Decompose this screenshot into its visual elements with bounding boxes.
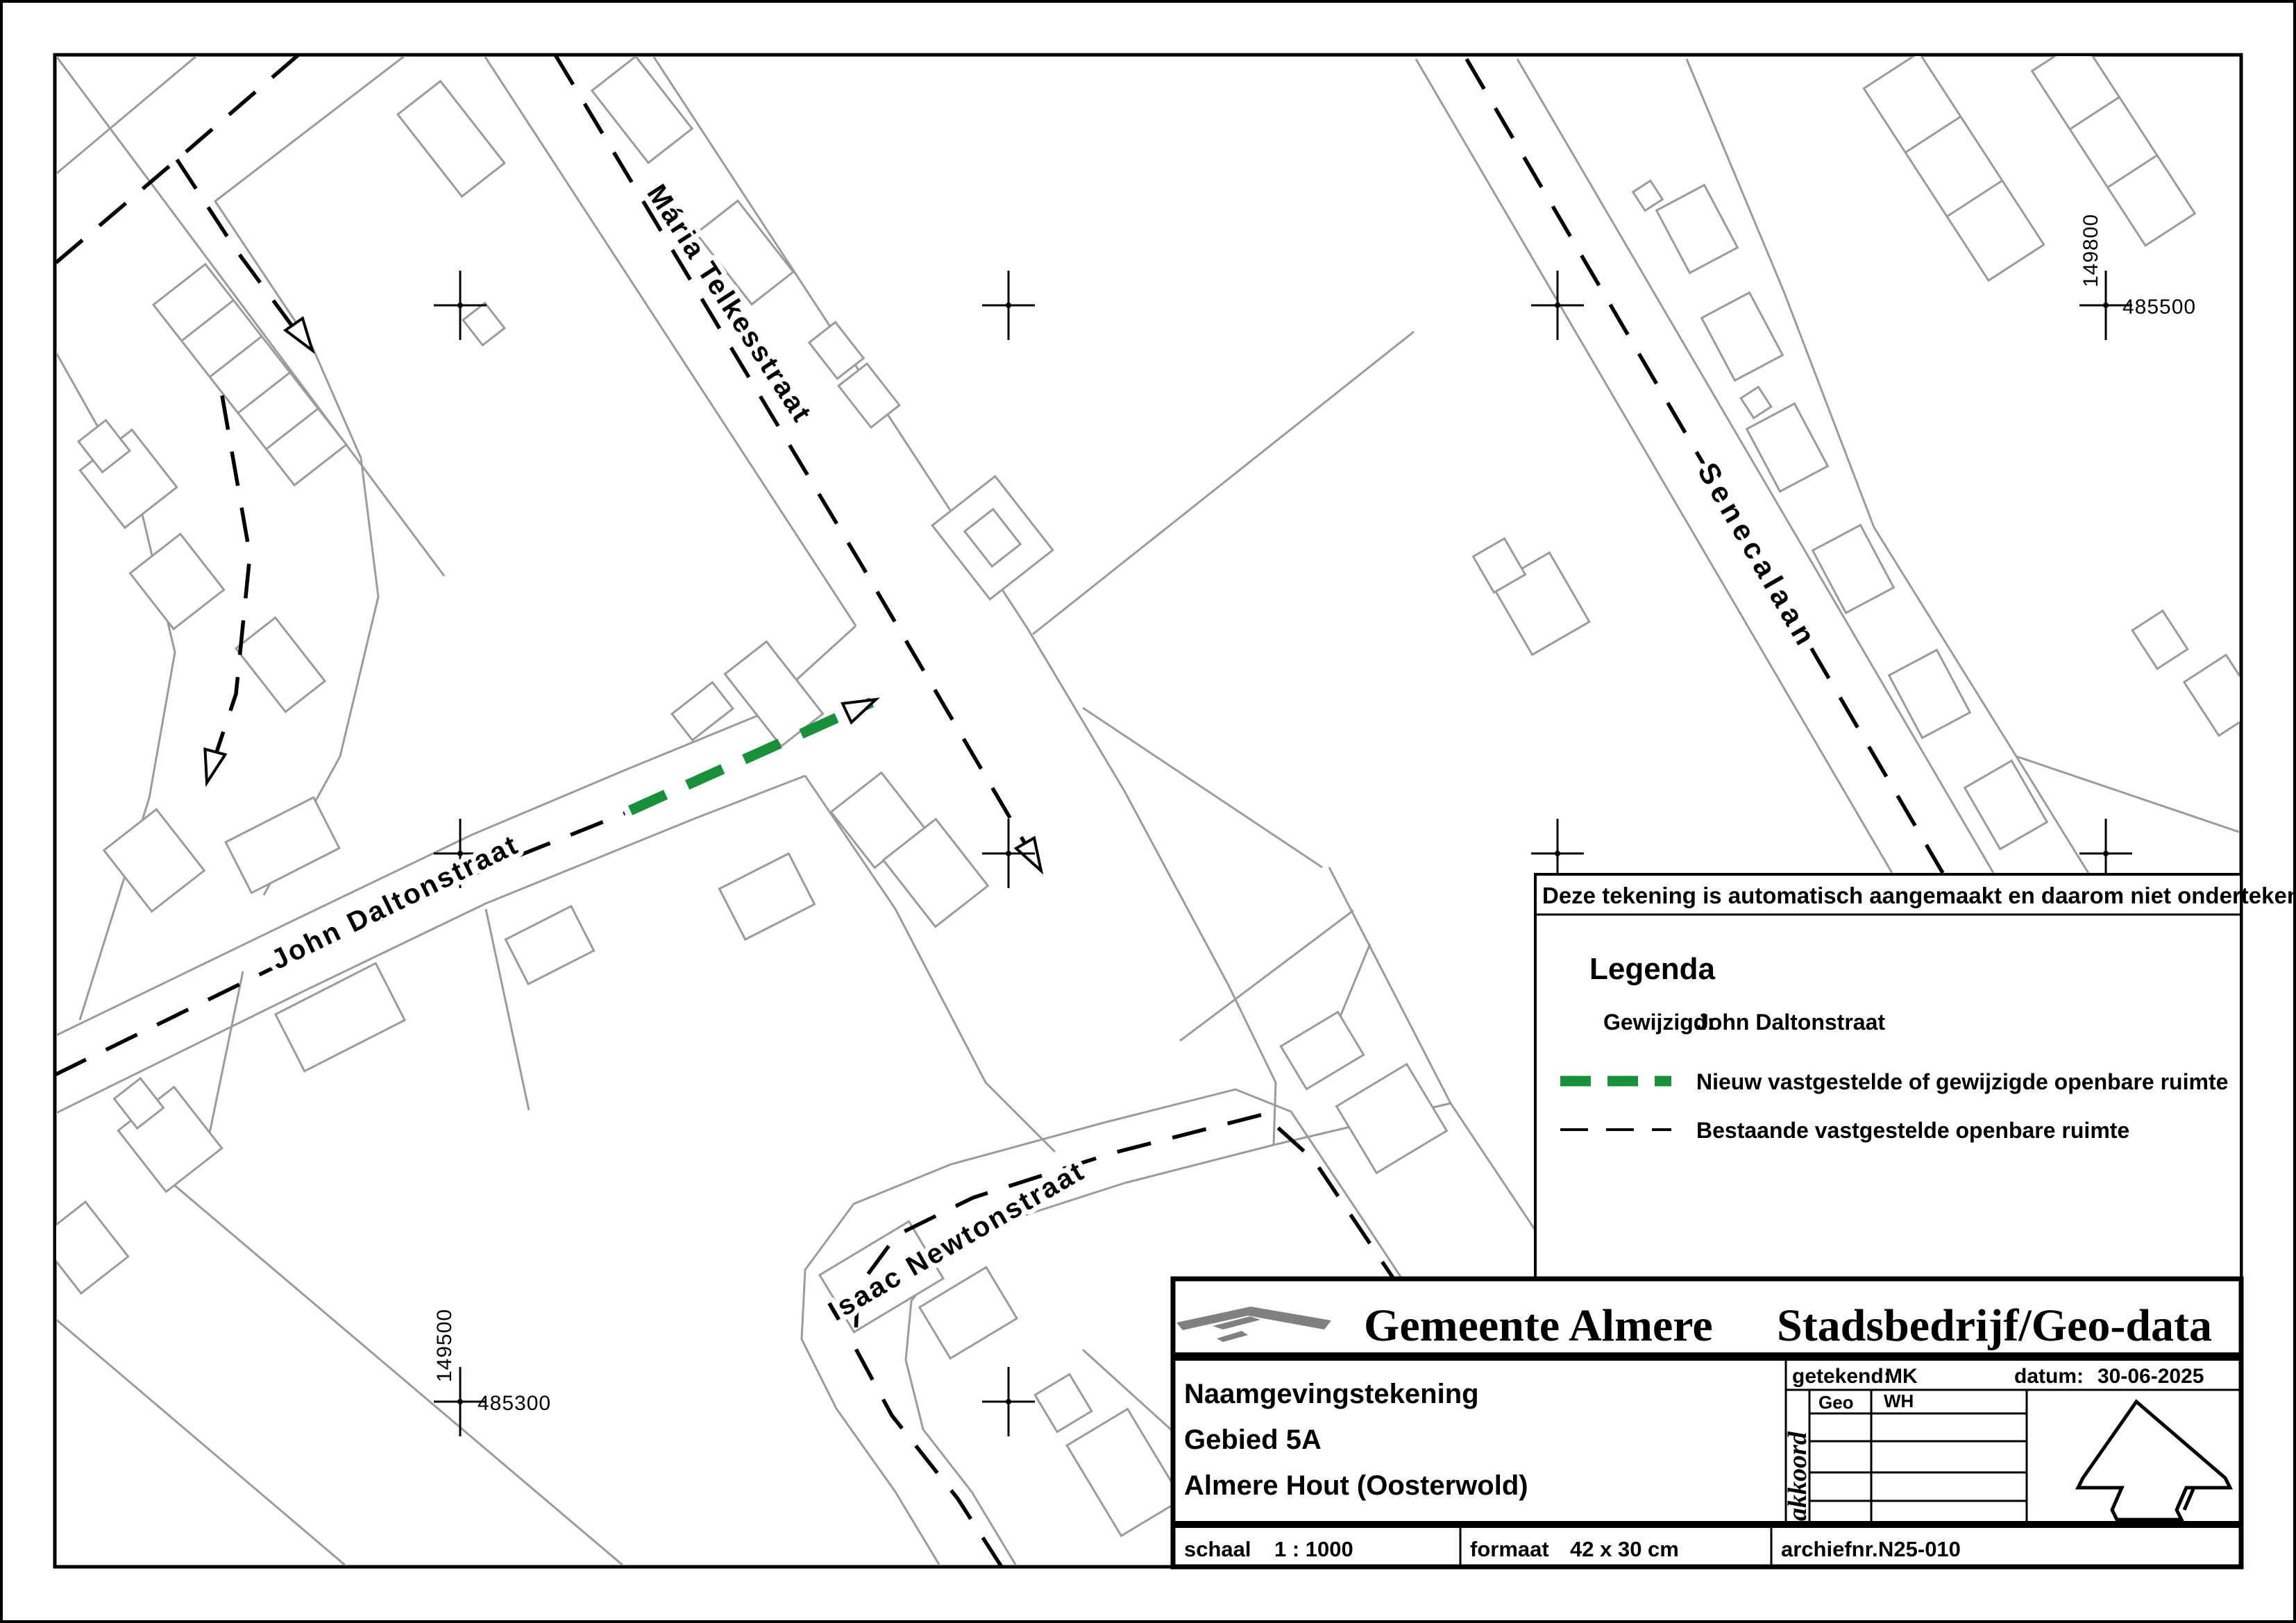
doc-district: Almere Hout (Oosterwold) xyxy=(1184,1470,1528,1501)
drawn-label: getekend: xyxy=(1792,1365,1891,1388)
format-label: formaat xyxy=(1470,1537,1549,1561)
legend-title: Legenda xyxy=(1589,952,1715,986)
grid-label-485300: 485300 xyxy=(478,1392,551,1415)
drawn-value: MK xyxy=(1885,1365,1918,1388)
bottom-row-divider xyxy=(1173,1521,2241,1528)
doc-type: Naamgevingstekening xyxy=(1184,1379,1479,1409)
title-block: Gemeente Almere Stadsbedrijf/Geo-data ge… xyxy=(1173,1279,2241,1567)
doc-area: Gebied 5A xyxy=(1184,1425,1322,1455)
scale-label: schaal xyxy=(1184,1537,1251,1561)
naming-drawing-sheet: Mária Telkesstraat John Daltonstraat Isa… xyxy=(0,0,2296,1623)
approve-row-dept: Geo xyxy=(1818,1392,1854,1413)
archive-label: archiefnr. xyxy=(1781,1537,1878,1561)
scale-value: 1 : 1000 xyxy=(1274,1537,1353,1561)
date-label: datum: xyxy=(2014,1365,2084,1388)
banner-divider xyxy=(1173,1352,2241,1361)
grid-label-149500: 149500 xyxy=(433,1309,456,1382)
legend-new-label: Nieuw vastgestelde of gewijzigde openbar… xyxy=(1696,1069,2228,1094)
archive-value: N25-010 xyxy=(1878,1537,1961,1561)
approve-label: akkoord xyxy=(1783,1431,1812,1521)
dept-name: Stadsbedrijf/Geo-data xyxy=(1777,1300,2212,1351)
auto-generated-note: Deze tekening is automatisch aangemaakt … xyxy=(1542,883,2296,908)
format-value: 42 x 30 cm xyxy=(1570,1537,1679,1561)
legend-changed-value: John Daltonstraat xyxy=(1696,1010,1885,1035)
org-name: Gemeente Almere xyxy=(1364,1300,1713,1351)
grid-label-485500: 485500 xyxy=(2122,296,2196,318)
approve-row-initials: WH xyxy=(1884,1391,1914,1411)
legend-box: Deze tekening is automatisch aangemaakt … xyxy=(1535,874,2296,1279)
grid-label-149800: 149800 xyxy=(2079,214,2102,287)
legend-existing-label: Bestaande vastgestelde openbare ruimte xyxy=(1696,1118,2129,1143)
date-value: 30-06-2025 xyxy=(2097,1365,2204,1388)
